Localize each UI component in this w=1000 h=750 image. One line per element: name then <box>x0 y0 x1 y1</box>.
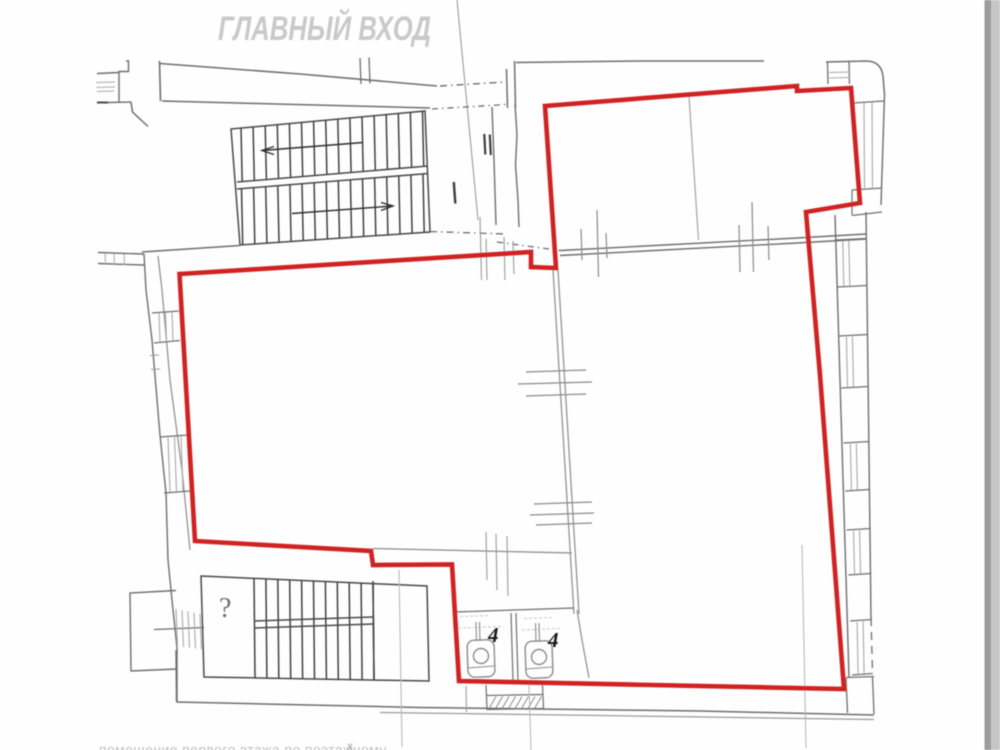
svg-text:4: 4 <box>547 628 559 652</box>
svg-text:4: 4 <box>487 623 499 647</box>
svg-text:?: ? <box>219 593 231 624</box>
svg-text:х: х <box>347 739 353 750</box>
svg-text:помещение первого этажа по поэ: помещение первого этажа по поэтажному <box>99 742 387 750</box>
svg-text:ГЛАВНЫЙ ВХОД: ГЛАВНЫЙ ВХОД <box>218 9 431 48</box>
